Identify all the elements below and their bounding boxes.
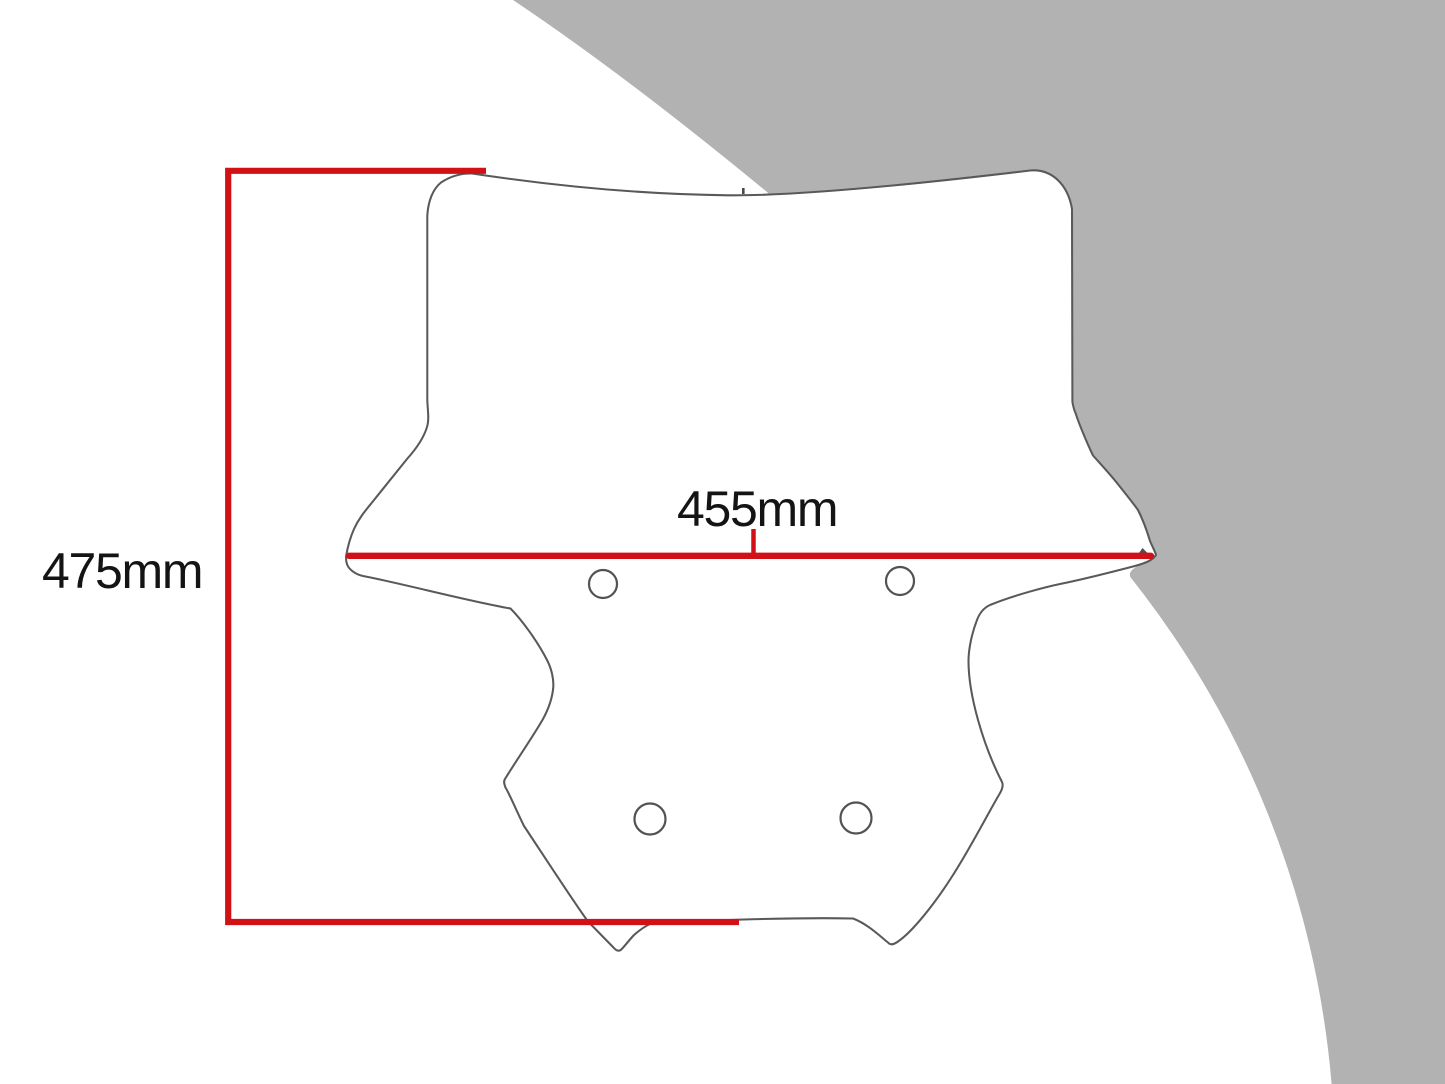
svg-text:475mm: 475mm [42, 543, 202, 599]
svg-text:455mm: 455mm [677, 481, 837, 537]
